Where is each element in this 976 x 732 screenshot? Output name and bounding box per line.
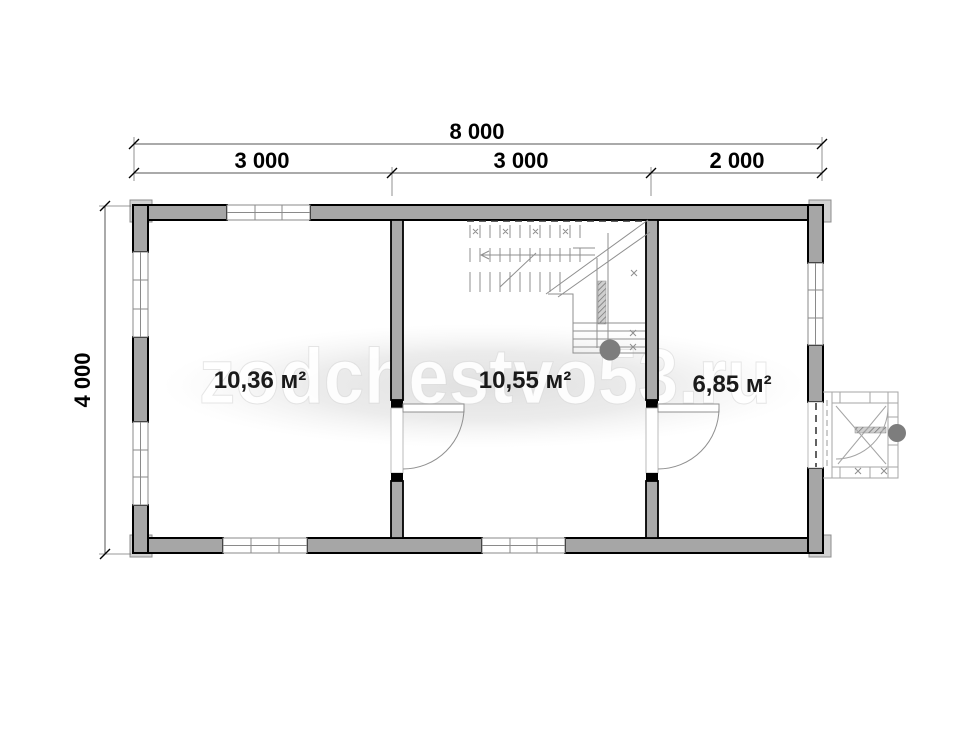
room-area-label: 10,36 м² [214,367,306,394]
door-opening-2 [646,408,658,473]
floor-plan-canvas: zodchestvo53.ru [0,0,976,732]
dimension-total-width: 8 000 [449,119,504,144]
dimension-left: 4 000 [70,201,131,559]
window-bottom-2 [482,538,565,553]
partition-1-upper [391,220,403,400]
wall-segment [310,205,822,220]
stair-newel-post [600,340,621,361]
partition-2-upper [646,220,658,400]
dimension-segment-2: 3 000 [493,148,548,173]
window-left-1 [133,252,148,337]
wall-segment [565,538,822,553]
dimension-segment-3: 2 000 [709,148,764,173]
dimension-segment-1: 3 000 [234,148,289,173]
partition-1-lower [391,481,403,538]
porch-post [888,424,906,442]
wall-segment [808,205,823,263]
wall-segment [133,205,148,252]
entrance-door [808,392,832,478]
room-area-label: 10,55 м² [479,367,571,394]
partition-2-lower [646,481,658,538]
wall-segment [808,468,823,553]
room-area-label: 6,85 м² [692,371,771,398]
dimension-top: 8 000 3 000 3 000 2 000 [129,119,827,196]
stair-stringer-hatch [598,281,606,324]
dimension-total-height: 4 000 [70,352,95,407]
wall-segment [307,538,482,553]
porch [832,392,906,478]
stair-break-line [500,220,650,297]
stair-treads-row1 [470,225,580,238]
wall-segment [133,505,148,553]
window-bottom-1 [223,538,307,553]
window-left-2 [133,422,148,505]
stair-treads-row3 [470,272,560,292]
door-opening-1 [391,408,403,473]
wall-segment [133,337,148,422]
window-top [227,205,310,220]
window-right [808,263,823,345]
floor-plan-page: zodchestvo53.ru [0,0,976,732]
wall-segment [808,345,823,402]
